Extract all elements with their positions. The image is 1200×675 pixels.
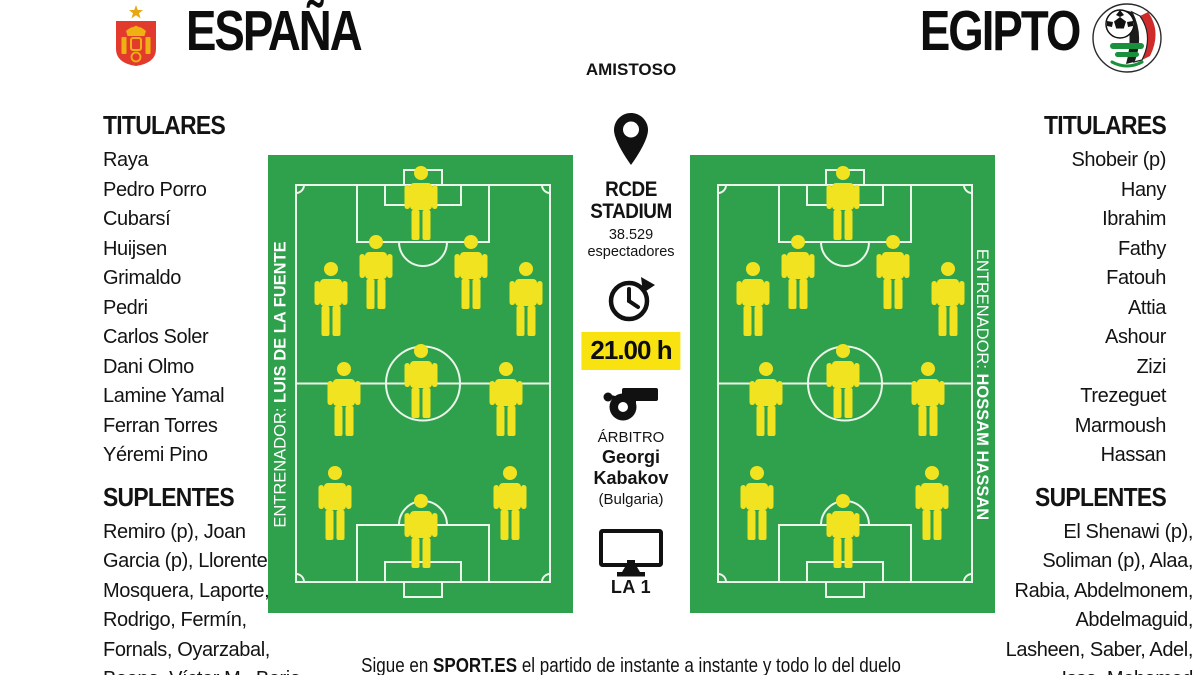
player-figure-icon	[327, 362, 361, 437]
spain-federation-crest-icon	[108, 4, 164, 70]
player-name: Fornals, Oyarzabal,	[103, 636, 303, 666]
match-type-label: AMISTOSO	[586, 60, 676, 80]
player-figure-icon	[915, 466, 949, 541]
home-players-layer	[268, 155, 573, 613]
away-pitch-diagram: ENTRENADOR: HOSSAM HASSAN	[690, 155, 995, 613]
away-team-name: EGIPTO	[920, 3, 1079, 59]
away-coach-label: ENTRENADOR: HOSSAM HASSAN	[973, 248, 992, 519]
sport-es-brand: SPORT.ES	[433, 655, 517, 675]
player-name: El Shenawi (p),	[966, 518, 1193, 548]
player-name: Issa, Mohamed	[966, 665, 1193, 675]
player-name: Baena, Víctor M., Borja	[103, 665, 303, 675]
player-figure-icon	[454, 235, 488, 310]
attendance-label: espectadores	[587, 244, 674, 260]
egypt-federation-crest-icon	[1090, 0, 1164, 78]
tv-icon	[598, 529, 664, 577]
away-suplentes-header: SUPLENTES	[990, 483, 1166, 511]
player-figure-icon	[318, 466, 352, 541]
tv-channel-label: LA 1	[611, 577, 651, 598]
home-team-name: ESPAÑA	[186, 3, 361, 59]
location-pin-icon	[614, 113, 648, 165]
player-figure-icon	[489, 362, 523, 437]
player-figure-icon	[749, 362, 783, 437]
away-suplentes-list: El Shenawi (p),Soliman (p), Alaa,Rabia, …	[966, 518, 1193, 675]
player-figure-icon	[736, 262, 770, 337]
whistle-icon	[602, 381, 660, 423]
home-suplentes-header: SUPLENTES	[103, 483, 279, 511]
player-figure-icon	[876, 235, 910, 310]
player-name: Lasheen, Saber, Adel,	[966, 636, 1193, 666]
away-players-layer	[690, 155, 995, 613]
player-figure-icon	[826, 494, 860, 569]
attendance-value: 38.529	[609, 227, 653, 243]
home-titulares-header: TITULARES	[103, 111, 279, 139]
venue-name-line1: RCDE	[605, 178, 657, 202]
player-figure-icon	[931, 262, 965, 337]
player-figure-icon	[404, 494, 438, 569]
player-figure-icon	[359, 235, 393, 310]
player-name: Abdelmaguid,	[966, 606, 1193, 636]
player-figure-icon	[740, 466, 774, 541]
player-name: Rabia, Abdelmonem,	[966, 577, 1193, 607]
player-figure-icon	[314, 262, 348, 337]
player-figure-icon	[404, 166, 438, 241]
player-figure-icon	[826, 166, 860, 241]
home-pitch-diagram: ENTRENADOR: LUIS DE LA FUENTE	[268, 155, 573, 613]
home-coach-strip: ENTRENADOR: LUIS DE LA FUENTE	[266, 155, 296, 613]
player-figure-icon	[404, 344, 438, 419]
referee-country: (Bulgaria)	[598, 491, 663, 508]
player-name: Soliman (p), Alaa,	[966, 547, 1193, 577]
footer-promo-text: Sigue en SPORT.ES el partido de instante…	[361, 655, 901, 675]
player-figure-icon	[826, 344, 860, 419]
kickoff-time-badge: 21.00 h	[581, 332, 680, 370]
match-preview-infographic: ESPAÑA EGIPTO AMISTOSO RCDE STADIUM 38.5…	[0, 0, 1200, 675]
away-coach-strip: ENTRENADOR: HOSSAM HASSAN	[967, 155, 997, 613]
player-figure-icon	[493, 466, 527, 541]
clock-icon	[606, 276, 656, 324]
referee-label: ÁRBITRO	[598, 429, 665, 446]
player-figure-icon	[781, 235, 815, 310]
away-titulares-header: TITULARES	[990, 111, 1166, 139]
referee-first-name: Georgi	[602, 447, 660, 468]
player-figure-icon	[509, 262, 543, 337]
match-info-column: AMISTOSO RCDE STADIUM 38.529 espectadore…	[560, 0, 702, 675]
home-coach-label: ENTRENADOR: LUIS DE LA FUENTE	[272, 241, 291, 527]
player-figure-icon	[911, 362, 945, 437]
venue-name-line2: STADIUM	[590, 200, 672, 224]
referee-last-name: Kabakov	[593, 468, 668, 489]
